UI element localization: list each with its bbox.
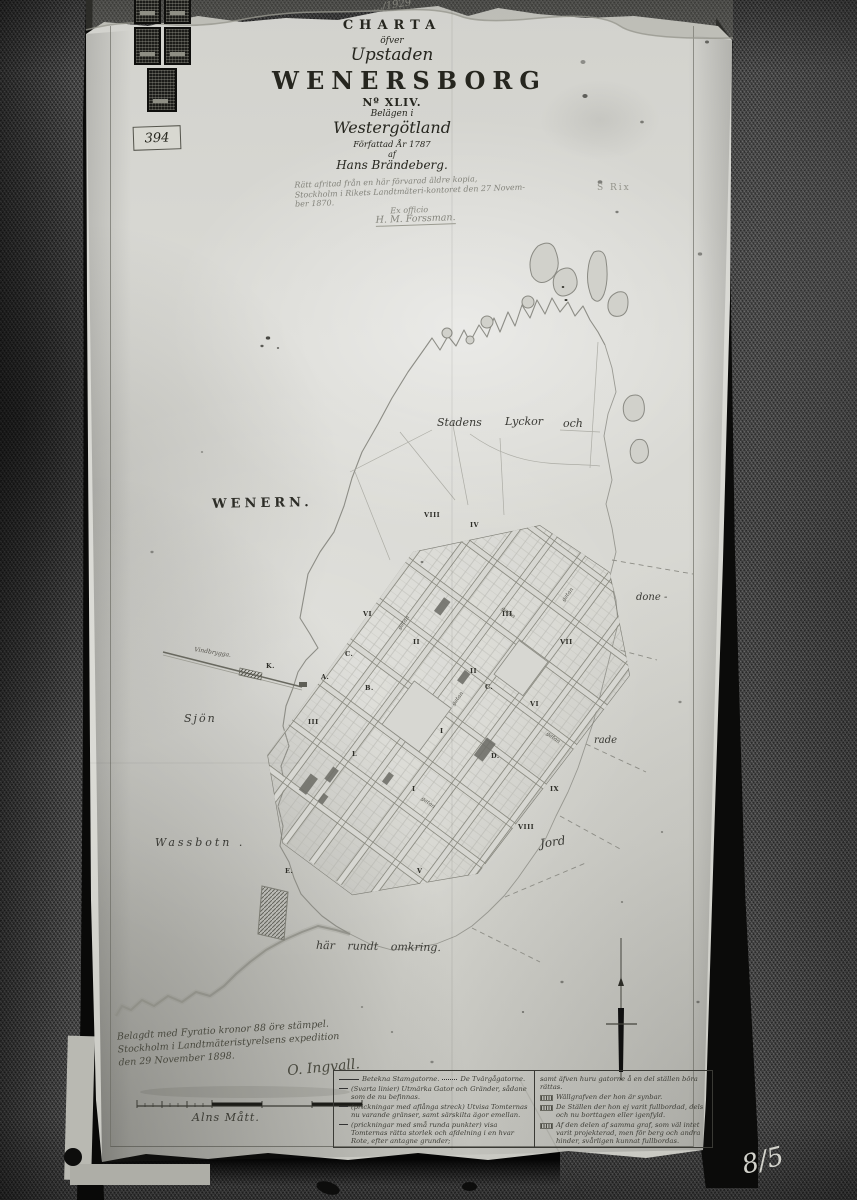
map-label-lyckor: Lyckor xyxy=(505,416,543,428)
block-mark: C. xyxy=(485,683,493,691)
town-grid xyxy=(226,470,672,950)
title-forfattad: Författad År 1787 xyxy=(272,140,512,150)
block-mark: B. xyxy=(365,684,374,692)
title-upstaden: Upstaden xyxy=(272,45,512,65)
legend-dash-symbol xyxy=(339,1088,348,1089)
legend-hatch-symbol xyxy=(540,1123,553,1129)
legend-box: Betekna Stamgatorne. De Tvärgågatorne. (… xyxy=(333,1070,713,1148)
legend-entry: Betekna Stamgatorne. xyxy=(362,1075,439,1083)
legend-hatch-symbol xyxy=(540,1105,553,1111)
copy-attestation-note: Rätt afritad från en här förvarad äldre … xyxy=(294,171,564,229)
legend-dash-symbol xyxy=(339,1106,348,1107)
legend-left-column: Betekna Stamgatorne. De Tvärgågatorne. (… xyxy=(334,1071,535,1147)
block-mark: C. xyxy=(345,650,353,658)
legend-entry: (prickningar med aflånga streck) Utvisa … xyxy=(351,1103,529,1119)
legend-dotted-line-symbol xyxy=(442,1079,457,1080)
block-mark: II xyxy=(470,667,477,675)
title-city-name: WENERSBORG xyxy=(272,66,512,95)
block-mark: L xyxy=(352,750,357,758)
block-mark: A. xyxy=(321,673,329,681)
block-mark: III xyxy=(308,718,319,726)
map-label-har-rundt-omkring: här rundt omkring. xyxy=(316,940,441,954)
block-mark: IV xyxy=(470,521,479,529)
block-mark: VIII xyxy=(424,511,440,519)
scale-bar xyxy=(137,1086,362,1108)
title-author: Hans Brändeberg. xyxy=(272,158,512,172)
legend-hatch-symbol xyxy=(540,1095,553,1101)
map-label-och: och xyxy=(563,418,583,430)
photograph-of-map: …/1929 CHARTA öfver Upstaden WENERSBORG … xyxy=(0,0,857,1200)
block-mark: D. xyxy=(491,752,500,760)
map-label-stadens: Stadens xyxy=(437,417,482,429)
legend-entry: (Svarta linier) Utmärka Gator och Grände… xyxy=(351,1085,529,1101)
map-label-wassbotn: Wassbotn . xyxy=(155,837,245,849)
title-map-number: Nº XLIV. xyxy=(272,96,512,109)
map-label-sjon: Sjön xyxy=(184,713,217,725)
archive-number-label: 394 xyxy=(133,125,182,151)
revenue-stamp xyxy=(147,68,177,112)
islets xyxy=(442,243,648,463)
block-mark: I xyxy=(440,727,444,735)
block-mark: II xyxy=(413,638,420,646)
block-mark: VI xyxy=(530,700,539,708)
legend-right-column: samt äfven huru gatorne å en del ställen… xyxy=(535,1071,712,1147)
block-mark: V xyxy=(417,867,423,875)
revenue-stamps xyxy=(131,0,193,112)
revenue-stamp xyxy=(134,0,161,24)
legend-entry: De Ställen der hon ej varit fullbordad, … xyxy=(556,1103,707,1119)
block-mark: VI xyxy=(363,610,372,618)
legend-solid-line-symbol xyxy=(339,1079,359,1080)
legend-entry: Wällgrafven der hon är synbar. xyxy=(556,1093,662,1101)
faint-note-s-rix: S Rix xyxy=(597,184,631,193)
title-province: Westergötland xyxy=(272,118,512,137)
map-label-done: done - xyxy=(636,593,667,604)
block-mark: VIII xyxy=(518,823,534,831)
block-mark: VII xyxy=(560,638,573,646)
revenue-stamp xyxy=(134,27,161,65)
block-mark: I xyxy=(412,785,416,793)
legend-entry: De Tvärgågatorne. xyxy=(460,1075,525,1083)
block-mark: IX xyxy=(550,785,559,793)
revenue-stamp xyxy=(164,0,191,24)
block-mark: E. xyxy=(285,867,293,875)
scale-label: Alns Mått. xyxy=(192,1112,260,1124)
revenue-stamp xyxy=(164,27,191,65)
legend-entry: (prickningar med små runda punkter) visa… xyxy=(351,1121,529,1146)
block-mark: K. xyxy=(266,662,275,670)
map-label-rade: rade xyxy=(594,736,617,747)
map-label-wenern: WENERN. xyxy=(212,496,313,511)
legend-entry: Af den delen af samma graf, som väl inte… xyxy=(556,1121,707,1146)
legend-entry: samt äfven huru gatorne å en del ställen… xyxy=(540,1075,707,1091)
title-charta: CHARTA xyxy=(272,18,512,33)
legend-dash-symbol xyxy=(339,1124,348,1125)
north-arrow xyxy=(606,938,637,1080)
